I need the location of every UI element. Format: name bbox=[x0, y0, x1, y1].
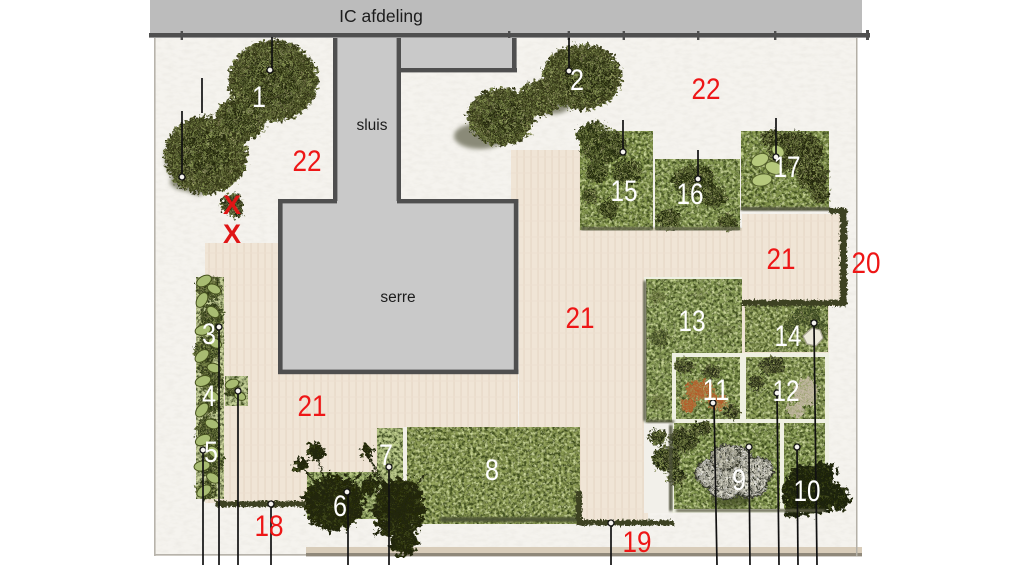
svg-text:22: 22 bbox=[293, 145, 322, 178]
svg-text:serre: serre bbox=[380, 289, 415, 306]
svg-text:15: 15 bbox=[611, 175, 638, 208]
svg-text:1: 1 bbox=[252, 81, 266, 114]
svg-text:22: 22 bbox=[692, 73, 721, 106]
svg-text:6: 6 bbox=[333, 490, 347, 523]
svg-text:16: 16 bbox=[677, 178, 704, 211]
svg-text:X: X bbox=[223, 190, 241, 220]
svg-text:11: 11 bbox=[703, 374, 730, 407]
svg-text:4: 4 bbox=[202, 380, 216, 413]
svg-text:17: 17 bbox=[774, 151, 801, 184]
svg-text:10: 10 bbox=[794, 475, 821, 508]
svg-text:18: 18 bbox=[255, 510, 284, 543]
svg-text:X: X bbox=[223, 219, 241, 249]
svg-text:21: 21 bbox=[767, 243, 796, 276]
svg-text:5: 5 bbox=[204, 436, 218, 469]
svg-text:3: 3 bbox=[202, 318, 216, 351]
svg-text:2: 2 bbox=[570, 64, 584, 97]
svg-text:13: 13 bbox=[679, 305, 706, 338]
svg-text:19: 19 bbox=[623, 526, 652, 559]
svg-text:9: 9 bbox=[732, 464, 746, 497]
svg-text:7: 7 bbox=[379, 439, 393, 472]
svg-text:IC afdeling: IC afdeling bbox=[339, 6, 423, 26]
svg-text:20: 20 bbox=[852, 247, 881, 280]
svg-text:sluis: sluis bbox=[356, 117, 387, 134]
svg-text:12: 12 bbox=[773, 375, 800, 408]
svg-text:8: 8 bbox=[485, 454, 499, 487]
svg-text:21: 21 bbox=[298, 390, 327, 423]
svg-text:21: 21 bbox=[566, 302, 595, 335]
svg-text:14: 14 bbox=[775, 320, 802, 353]
